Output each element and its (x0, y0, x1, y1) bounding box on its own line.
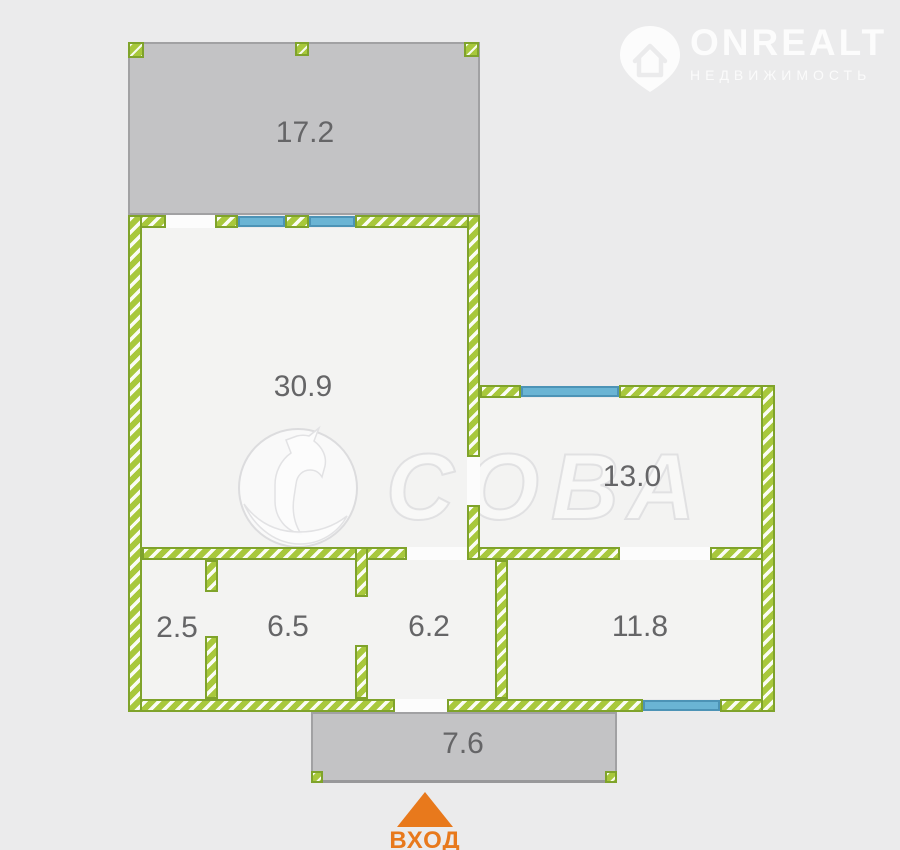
area-label-balcony: 17.2 (276, 116, 334, 150)
wall-balcony-front-3 (285, 215, 309, 228)
wall-wc-divider-bottom (205, 636, 218, 699)
wall-bath-divider-bottom (355, 645, 368, 699)
wall-room13-top-1 (480, 385, 521, 398)
balcony-post-right (464, 42, 479, 57)
porch-post-right (605, 771, 617, 783)
door-living-hallway (407, 547, 467, 560)
area-label-hallway: 6.2 (408, 610, 450, 644)
wall-room118-left (495, 560, 508, 699)
wall-living-right-lower (467, 505, 480, 560)
door-living-room13 (467, 457, 480, 505)
area-label-porch: 7.6 (442, 727, 484, 761)
window-room13 (521, 386, 619, 397)
area-label-bathroom: 6.5 (267, 610, 309, 644)
wall-mid-center (467, 547, 620, 560)
entrance-label: ВХОД (389, 827, 460, 850)
wall-balcony-front-2 (215, 215, 238, 228)
area-label-wc: 2.5 (156, 611, 198, 645)
brand-pin-house-icon (618, 24, 682, 99)
window-living-1 (238, 216, 285, 227)
brand-name: ONREALT (690, 24, 887, 61)
wall-room13-top-2 (619, 385, 775, 398)
wall-bottom-center (447, 699, 643, 712)
door-entrance (395, 699, 447, 712)
porch-post-left (311, 771, 323, 783)
brand-subtitle: НЕДВИЖИМОСТЬ (690, 67, 887, 83)
balcony-post-middle (295, 42, 309, 56)
entrance-arrow-icon (397, 792, 453, 827)
area-label-room118: 11.8 (612, 610, 668, 644)
wall-wc-divider-top (205, 560, 218, 592)
window-living-2 (309, 216, 355, 227)
wall-bottom-left (128, 699, 395, 712)
window-room118 (643, 700, 720, 711)
wall-living-right-upper (467, 215, 480, 457)
door-balcony-living (166, 215, 215, 228)
floorplan-canvas: ONREALT НЕДВИЖИМОСТЬ СОВА (0, 0, 900, 850)
brand-watermark: ONREALT НЕДВИЖИМОСТЬ (618, 24, 887, 99)
door-room13-room118 (620, 547, 710, 560)
balcony-post-left (128, 42, 144, 58)
owl-watermark-icon (232, 424, 364, 561)
area-label-room13: 13.0 (603, 460, 661, 494)
wall-bath-divider-top (355, 547, 368, 597)
wall-right-outer (761, 385, 775, 712)
wall-balcony-front-4 (355, 215, 480, 228)
wall-left-outer (128, 215, 142, 712)
area-label-living: 30.9 (274, 370, 332, 404)
